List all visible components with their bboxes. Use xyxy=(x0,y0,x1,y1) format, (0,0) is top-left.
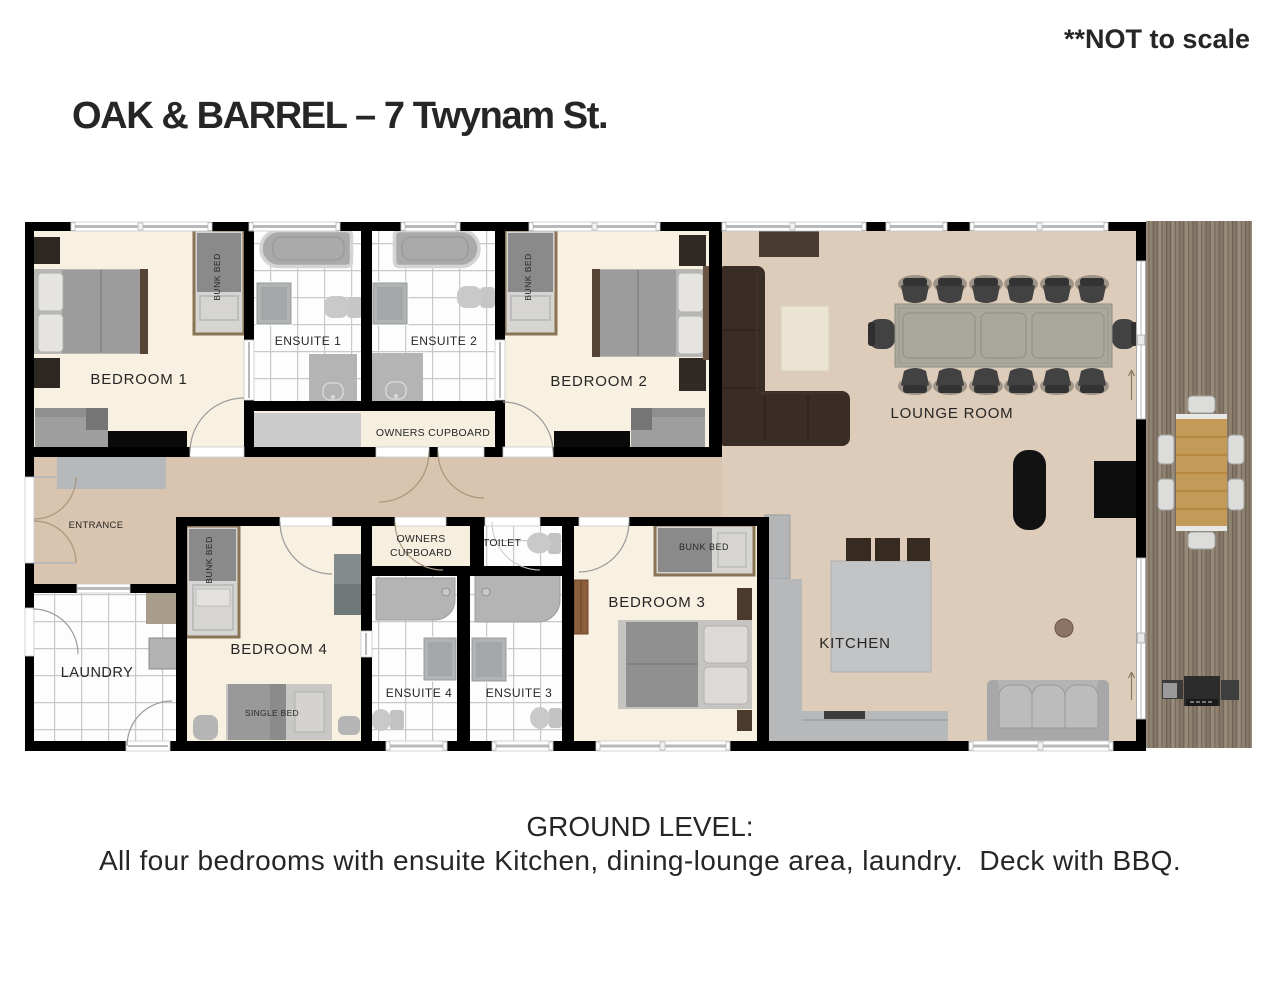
svg-text:BEDROOM 3: BEDROOM 3 xyxy=(608,594,705,611)
svg-text:BEDROOM 4: BEDROOM 4 xyxy=(230,641,327,658)
svg-text:BUNK BED: BUNK BED xyxy=(212,253,222,300)
svg-text:BUNK BED: BUNK BED xyxy=(523,253,533,300)
svg-text:GROUND LEVEL:: GROUND LEVEL: xyxy=(526,811,753,842)
svg-text:ENSUITE 3: ENSUITE 3 xyxy=(486,686,553,700)
svg-text:BUNK BED: BUNK BED xyxy=(679,542,729,552)
svg-text:ENTRANCE: ENTRANCE xyxy=(69,520,124,531)
svg-text:BEDROOM 1: BEDROOM 1 xyxy=(90,371,187,388)
svg-text:OWNERS: OWNERS xyxy=(396,533,445,545)
svg-text:SINGLE BED: SINGLE BED xyxy=(245,708,299,718)
svg-text:ENSUITE 2: ENSUITE 2 xyxy=(411,334,478,348)
svg-text:ENSUITE 4: ENSUITE 4 xyxy=(386,686,453,700)
svg-text:KITCHEN: KITCHEN xyxy=(819,635,890,652)
svg-text:CUPBOARD: CUPBOARD xyxy=(390,547,452,559)
svg-text:ENSUITE 1: ENSUITE 1 xyxy=(275,334,342,348)
svg-text:LAUNDRY: LAUNDRY xyxy=(61,665,134,681)
svg-text:TOILET: TOILET xyxy=(483,537,522,549)
svg-text:All four bedrooms with ensuite: All four bedrooms with ensuite Kitchen, … xyxy=(99,845,1181,876)
svg-text:LOUNGE ROOM: LOUNGE ROOM xyxy=(891,405,1014,422)
svg-text:BEDROOM 2: BEDROOM 2 xyxy=(550,373,647,390)
svg-text:**NOT to scale: **NOT to scale xyxy=(1064,24,1250,54)
svg-text:OAK & BARREL – 7 Twynam St.: OAK & BARREL – 7 Twynam St. xyxy=(72,95,607,137)
svg-text:OWNERS CUPBOARD: OWNERS CUPBOARD xyxy=(376,427,490,439)
svg-text:BUNK BED: BUNK BED xyxy=(204,536,214,583)
